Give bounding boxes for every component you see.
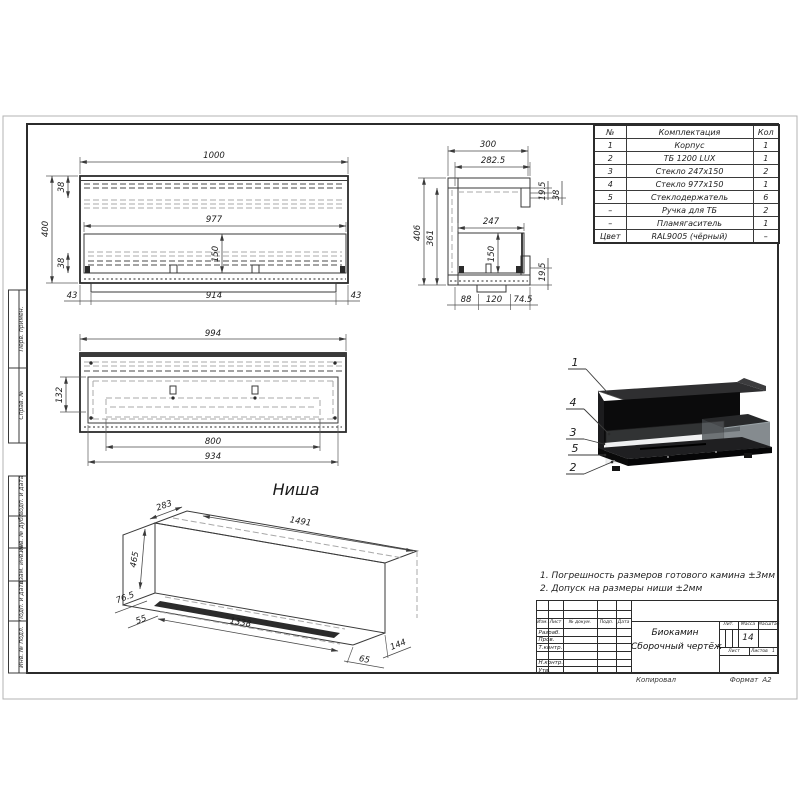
part-name: Стекло 977х150 <box>626 178 753 191</box>
note-line-1: 1. Погрешность размеров готового камина … <box>540 571 775 581</box>
niche-dim-c: 65 <box>358 654 370 666</box>
parts-header-row: № Комплектация Кол <box>594 125 779 139</box>
titleblock-line <box>537 618 631 619</box>
sheets-value: 1 <box>772 649 775 654</box>
side-dim-flange: 38 <box>552 189 562 200</box>
part-qty: 6 <box>753 191 779 204</box>
part-num: – <box>594 204 626 217</box>
side-dim-inner-width: 282.5 <box>481 156 505 166</box>
side-dim-seg1: 88 <box>461 295 472 305</box>
part-qty: 2 <box>753 204 779 217</box>
row-nkontr: Н.контр. <box>539 660 564 666</box>
col-podp: Подп. <box>597 620 616 625</box>
parts-row: 4Стекло 977х1501 <box>594 178 779 191</box>
front-dim-left-gap: 43 <box>67 291 78 301</box>
side-dim-glass-width: 247 <box>483 217 500 227</box>
titleblock-line <box>597 601 598 674</box>
part-name: Ручка для ТБ <box>626 204 753 217</box>
part-qty: 1 <box>753 152 779 165</box>
front-dim-inner-width: 977 <box>206 215 223 225</box>
parts-table: № Комплектация Кол 1Корпус1 2ТБ 1200 LUX… <box>593 124 780 244</box>
title-block: Изм. Лист № докум. Подп. Дата Разраб. Пр… <box>536 600 778 673</box>
part-name: RAL9005 (чёрный) <box>626 230 753 244</box>
drawing-canvas: Перв. примен. Справ. № Подп. и дата Инв.… <box>0 0 800 800</box>
stamp-podp-data-2: Подп. и дата <box>18 580 25 621</box>
format-value: А2 <box>761 676 772 684</box>
side-dim-height: 406 <box>413 224 423 241</box>
stamp-podp-data-1: Подп. и дата <box>18 475 25 516</box>
parts-header-qty: Кол <box>753 125 779 139</box>
col-data: Дата <box>616 620 631 625</box>
format-label: Формат <box>730 676 759 684</box>
lit-label: Лит. <box>719 622 738 627</box>
part-num: – <box>594 217 626 230</box>
parts-header-num: № <box>594 125 626 139</box>
parts-row: –Пламягаситель1 <box>594 217 779 230</box>
part-name: Корпус <box>626 139 753 152</box>
parts-row: 1Корпус1 <box>594 139 779 152</box>
callout-4: 4 <box>570 396 577 409</box>
side-dim-lip-bottom: 19.5 <box>538 263 548 282</box>
front-dim-bottom: 38 <box>57 257 67 268</box>
titleblock-line <box>537 610 631 611</box>
part-num: 2 <box>594 152 626 165</box>
sheet-label: Лист <box>719 649 749 654</box>
front-dim-height: 400 <box>41 221 51 237</box>
part-num: 4 <box>594 178 626 191</box>
row-tkontr: Т.контр. <box>539 645 563 651</box>
parts-row: –Ручка для ТБ2 <box>594 204 779 217</box>
titleblock-line <box>719 629 779 630</box>
fireplace-render <box>598 378 772 471</box>
callout-5: 5 <box>572 442 579 455</box>
row-razrab: Разраб. <box>539 630 561 636</box>
titleblock-line <box>749 647 750 655</box>
parts-row: ЦветRAL9005 (чёрный)– <box>594 230 779 244</box>
stamp-inv-podl: Инв. № подл. <box>18 626 25 667</box>
part-qty: 2 <box>753 165 779 178</box>
part-num: 1 <box>594 139 626 152</box>
part-qty: 1 <box>753 217 779 230</box>
titleblock-line <box>537 666 631 667</box>
parts-row: 5Стеклодержатель6 <box>594 191 779 204</box>
niche-view-label: Ниша <box>273 480 320 499</box>
mass-label: Масса <box>738 622 758 627</box>
stamp-sprav-no: Справ. № <box>18 390 25 419</box>
front-dim-base: 914 <box>206 291 222 301</box>
front-dim-top: 38 <box>57 181 67 192</box>
doc-title-line1: Биокамин <box>631 628 719 638</box>
front-dim-width: 1000 <box>203 151 225 161</box>
side-dim-inner-height: 361 <box>426 230 436 246</box>
note-line-2: 2. Допуск на размеры ниши ±2мм <box>540 584 702 594</box>
plan-dim-width: 994 <box>205 329 221 339</box>
titleblock-line <box>719 655 779 656</box>
titleblock-line <box>537 651 631 652</box>
copied-label: Копировал <box>636 676 677 684</box>
titleblock-line <box>616 601 617 674</box>
part-num: Цвет <box>594 230 626 244</box>
mass-value: 14 <box>738 633 758 643</box>
stamp-perv-primen: Перв. примен. <box>18 306 25 351</box>
side-dim-width: 300 <box>480 140 496 150</box>
part-num: 5 <box>594 191 626 204</box>
scale-label: Масштаб <box>758 622 779 627</box>
parts-row: 3Стекло 247х1502 <box>594 165 779 178</box>
col-doc: № докум. <box>563 620 597 625</box>
row-prov: Пров. <box>539 637 555 643</box>
front-dim-glass-height: 150 <box>211 246 221 262</box>
callout-2: 2 <box>570 461 577 474</box>
parts-row: 2ТБ 1200 LUX1 <box>594 152 779 165</box>
part-name: Стекло 247х150 <box>626 165 753 178</box>
col-izm: Изм. <box>537 620 548 625</box>
titleblock-line <box>725 629 726 647</box>
part-name: ТБ 1200 LUX <box>626 152 753 165</box>
stamp-vzam-inv: Взам. инв. № <box>18 544 25 585</box>
side-dim-glass-height: 150 <box>487 246 497 262</box>
doc-title-line2: Сборочный чертёж <box>631 642 719 652</box>
part-name: Стеклодержатель <box>626 191 753 204</box>
part-qty: 1 <box>753 139 779 152</box>
front-dim-right-gap: 43 <box>351 291 362 301</box>
side-dim-lip-top: 19.5 <box>538 182 548 201</box>
part-qty: 1 <box>753 178 779 191</box>
row-utv: Утв. <box>539 668 551 674</box>
titleblock-line <box>563 601 564 674</box>
sheets-label: Листов <box>751 649 768 654</box>
parts-header-name: Комплектация <box>626 125 753 139</box>
plan-dim-inner: 934 <box>205 452 221 462</box>
plan-dim-burner: 800 <box>205 437 221 447</box>
side-dim-seg2: 120 <box>486 295 502 305</box>
side-dim-seg3: 74.5 <box>514 295 533 305</box>
part-qty: – <box>753 230 779 244</box>
plan-dim-depth: 132 <box>55 387 65 403</box>
part-num: 3 <box>594 165 626 178</box>
callout-1: 1 <box>572 356 579 369</box>
col-list: Лист <box>548 620 563 625</box>
callout-3: 3 <box>570 426 577 439</box>
part-name: Пламягаситель <box>626 217 753 230</box>
titleblock-line <box>732 629 733 647</box>
